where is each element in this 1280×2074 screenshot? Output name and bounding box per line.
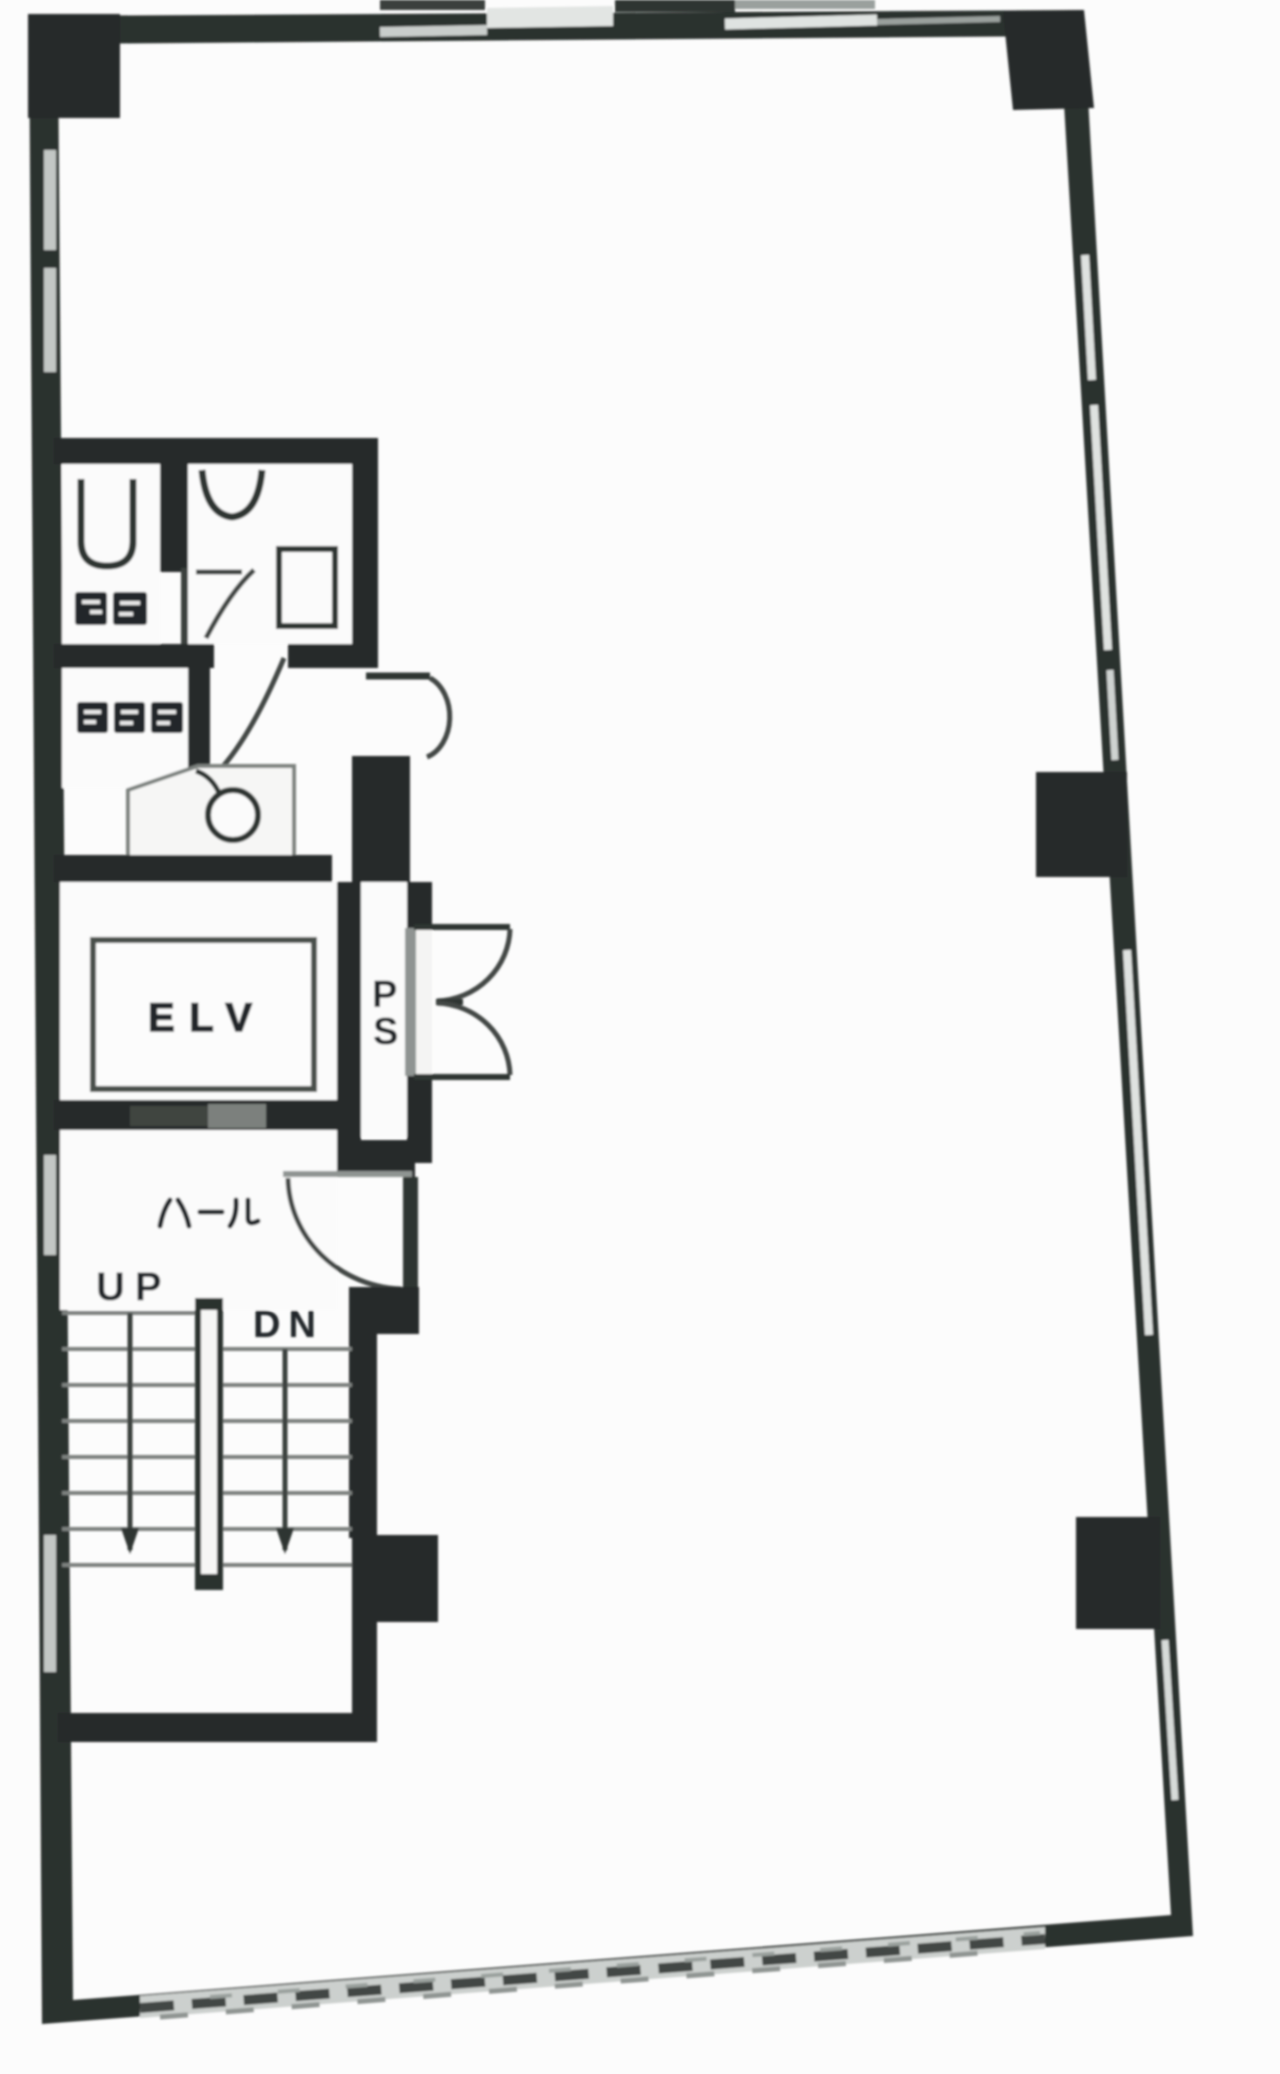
- svg-text:P: P: [372, 974, 397, 1016]
- svg-text:UP: UP: [96, 1265, 172, 1309]
- svg-text:S: S: [373, 1011, 398, 1053]
- svg-text:DN: DN: [253, 1304, 324, 1346]
- svg-text:ELV: ELV: [148, 996, 252, 1040]
